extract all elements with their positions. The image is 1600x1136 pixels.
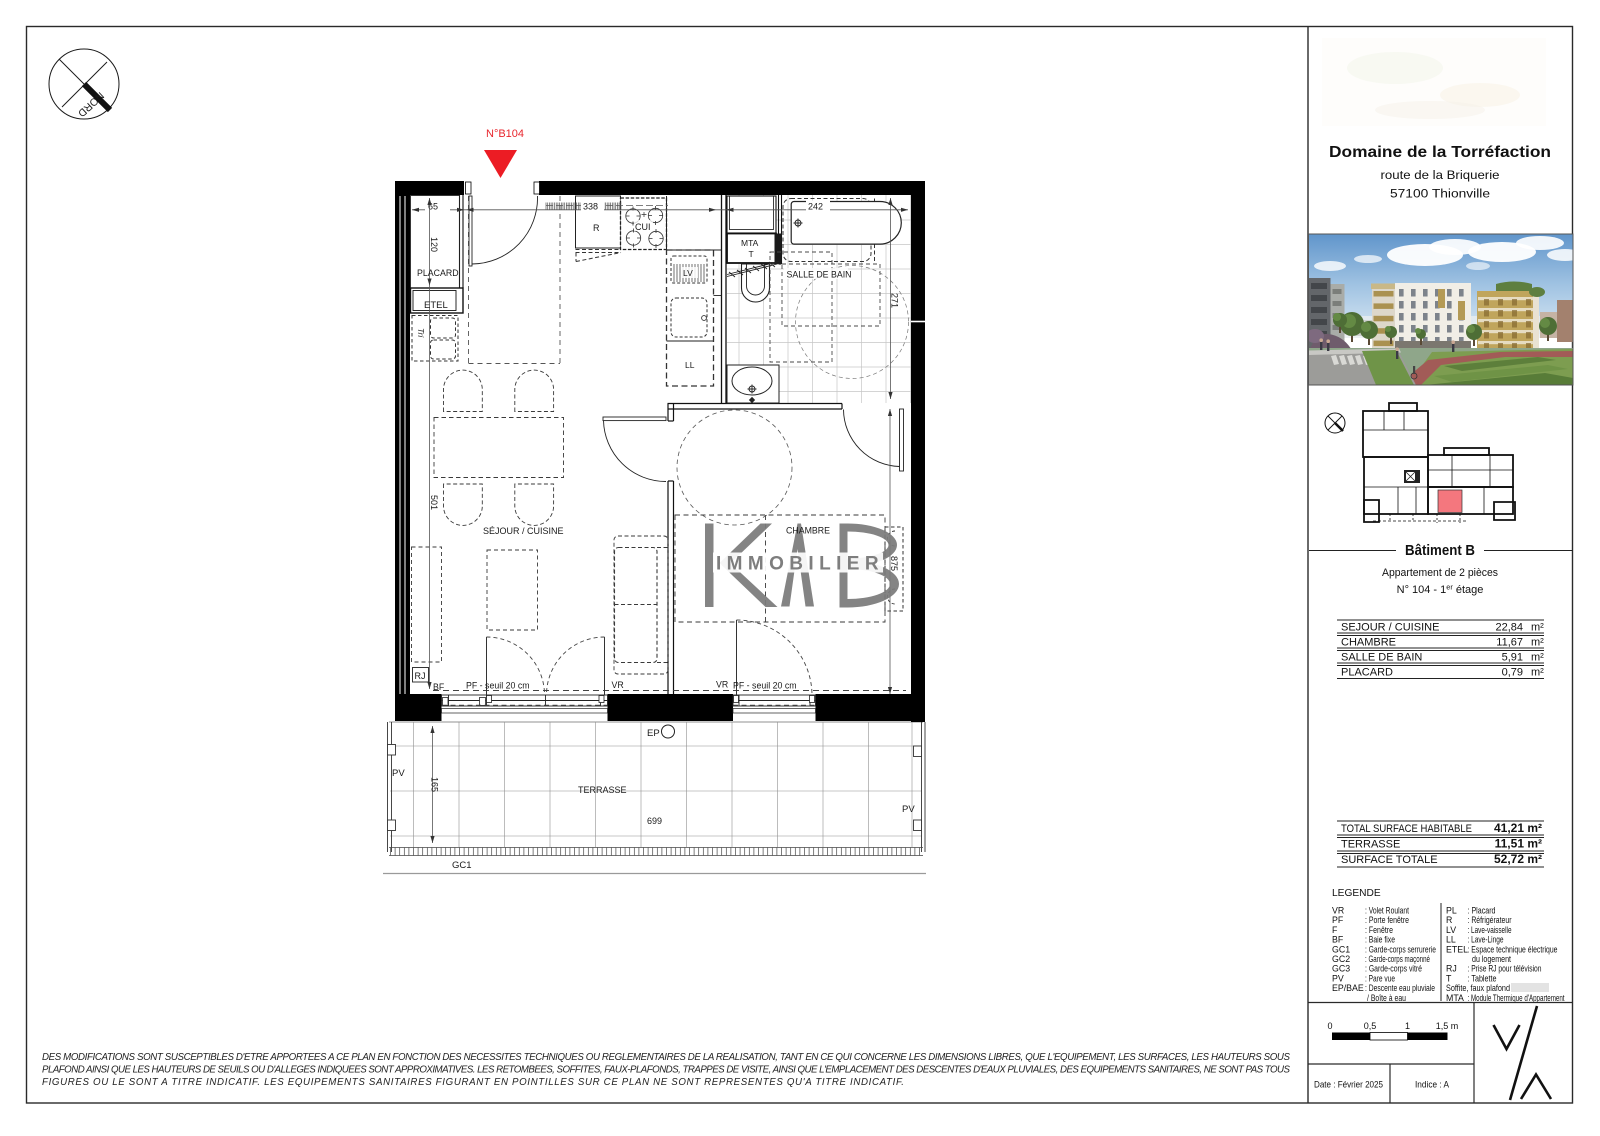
svg-text:PLAFOND AINSI QUE LES HAUTEURS: PLAFOND AINSI QUE LES HAUTEURS DE SEUILS… [42,1065,1291,1076]
svg-text:N° 104 - 1er étage: N° 104 - 1er étage [1397,583,1484,597]
svg-text:0: 0 [1327,1021,1332,1031]
svg-text:BF: BF [1332,935,1344,945]
svg-text:CUI: CUI [635,222,651,232]
svg-text:SURFACE TOTALE: SURFACE TOTALE [1341,854,1438,866]
svg-text:GC3: GC3 [1332,964,1350,974]
svg-text:IMMOBILIER: IMMOBILIER [716,554,884,575]
svg-text:SALLE DE BAIN: SALLE DE BAIN [787,270,852,280]
svg-text:RJ: RJ [1446,964,1457,974]
svg-text:CHAMBRE: CHAMBRE [1341,637,1396,649]
svg-text:GC1: GC1 [1332,944,1350,954]
svg-text:ETEL: ETEL [424,300,448,311]
svg-text:22,84: 22,84 [1495,622,1523,634]
svg-text:Domaine de la Torréfaction: Domaine de la Torréfaction [1329,144,1551,161]
svg-text:: Garde-corps serrurerie: : Garde-corps serrurerie [1365,944,1436,954]
svg-text:PL: PL [1446,906,1457,916]
svg-text:RJ: RJ [415,671,426,681]
svg-text:T: T [749,249,754,259]
svg-text:: Tablette: : Tablette [1468,973,1497,983]
svg-text:0,79: 0,79 [1502,667,1523,679]
svg-text:PF - seuil 20 cm: PF - seuil 20 cm [466,681,530,691]
svg-text:52,72 m²: 52,72 m² [1494,852,1542,866]
svg-text:: Réfrigérateur: : Réfrigérateur [1468,915,1512,925]
svg-text:: Volet Roulant: : Volet Roulant [1365,906,1409,916]
svg-text:VR: VR [716,680,728,690]
svg-text:ETEL: ETEL [1446,944,1468,954]
svg-text:SALLE DE BAIN: SALLE DE BAIN [1341,652,1422,664]
svg-text:: Garde-corps vitré: : Garde-corps vitré [1365,964,1422,974]
svg-text:/ Boîte à eau: / Boîte à eau [1367,993,1406,1003]
svg-text:57100 Thionville: 57100 Thionville [1390,187,1490,201]
svg-text:: Garde-corps maçonné: : Garde-corps maçonné [1365,954,1430,964]
svg-text:Tri: Tri [416,328,426,338]
svg-text:T: T [1446,973,1452,983]
svg-text:GC2: GC2 [1332,954,1350,964]
svg-text:TOTAL SURFACE HABITABLE: TOTAL SURFACE HABITABLE [1341,823,1472,835]
svg-text:Bâtiment B: Bâtiment B [1405,543,1475,559]
svg-text:LL: LL [1446,935,1456,945]
svg-text:11,67: 11,67 [1496,637,1523,649]
svg-text:m²: m² [1531,637,1544,649]
svg-text:: Placard: : Placard [1468,906,1496,916]
svg-text:: Espace technique électrique: : Espace technique électrique [1468,944,1558,954]
svg-text:: Pare vue: : Pare vue [1365,973,1395,983]
svg-text:MTA: MTA [741,238,759,248]
svg-text:242: 242 [808,202,823,212]
svg-text:MTA: MTA [1446,993,1464,1003]
svg-text:Indice : A: Indice : A [1415,1080,1450,1091]
svg-text:F: F [1332,925,1338,935]
svg-text:du logement: du logement [1472,954,1511,964]
svg-text:FIGURES OU LE SONT A TITRE IND: FIGURES OU LE SONT A TITRE INDICATIF. LE… [42,1077,904,1088]
svg-text:PV: PV [392,768,405,779]
svg-text:route de la Briquerie: route de la Briquerie [1381,168,1500,182]
svg-text:m²: m² [1531,622,1544,634]
svg-text:VR: VR [1332,906,1344,916]
svg-text:N°B104: N°B104 [486,128,524,140]
svg-text:0,5: 0,5 [1364,1021,1377,1031]
svg-text:VR: VR [612,680,624,690]
svg-text:PF - seuil 20 cm: PF - seuil 20 cm [733,681,797,691]
svg-text:SÉJOUR / CUISINE: SÉJOUR / CUISINE [483,526,564,536]
svg-text:338: 338 [583,202,598,212]
svg-text:SEJOUR / CUISINE: SEJOUR / CUISINE [1341,622,1439,634]
svg-text:PLACARD: PLACARD [1341,667,1393,679]
svg-text:271: 271 [890,293,900,308]
svg-text:1,5 m: 1,5 m [1436,1021,1459,1031]
svg-text:: Baie fixe: : Baie fixe [1365,935,1395,945]
svg-text:: Lave-vaisselle: : Lave-vaisselle [1468,925,1512,935]
svg-text:PV: PV [1332,973,1344,983]
svg-text:501: 501 [429,495,439,510]
svg-text:PLACARD: PLACARD [417,268,459,278]
svg-text:PF: PF [1332,915,1344,925]
svg-text:: Prise RJ pour télévision: : Prise RJ pour télévision [1468,964,1542,974]
svg-text:EP: EP [647,728,660,739]
svg-text:Appartement de 2 pièces: Appartement de 2 pièces [1382,567,1498,579]
svg-text:CHAMBRE: CHAMBRE [786,526,830,536]
svg-text:120: 120 [429,237,439,252]
svg-text:PV: PV [902,804,915,815]
svg-text:: Descente eau pluviale: : Descente eau pluviale [1365,983,1435,993]
svg-text:: Fenêtre: : Fenêtre [1365,925,1393,935]
svg-text:R: R [593,223,600,233]
svg-text:LV: LV [1446,925,1456,935]
svg-text:11,51 m²: 11,51 m² [1495,837,1542,851]
svg-text:LL: LL [685,360,695,370]
svg-text:: Module Thermique d'Apparteme: : Module Thermique d'Appartement [1468,993,1565,1003]
svg-text:DES MODIFICATIONS SONT SUSCEPT: DES MODIFICATIONS SONT SUSCEPTIBLES D'ET… [42,1052,1291,1063]
svg-text:699: 699 [647,816,662,826]
svg-text:LV: LV [683,268,693,278]
svg-text:m²: m² [1531,667,1544,679]
svg-text:LEGENDE: LEGENDE [1332,888,1381,899]
svg-text:TERRASSE: TERRASSE [1341,839,1400,851]
svg-text:5,91: 5,91 [1502,652,1523,664]
svg-text:41,21 m²: 41,21 m² [1494,821,1542,835]
svg-text:BF: BF [433,682,445,692]
svg-text:875: 875 [889,556,899,571]
svg-text:EP/BAE: EP/BAE [1332,983,1364,993]
svg-text:Date : Février 2025: Date : Février 2025 [1314,1080,1383,1091]
svg-text:TERRASSE: TERRASSE [578,785,627,795]
svg-text:Soffite, faux plafond: Soffite, faux plafond [1446,983,1510,993]
svg-text:: Porte fenêtre: : Porte fenêtre [1365,915,1409,925]
svg-text:165: 165 [430,777,440,792]
svg-text:R: R [1446,915,1452,925]
svg-text:1: 1 [1405,1021,1410,1031]
svg-text:: Lave-Linge: : Lave-Linge [1468,935,1504,945]
svg-text:GC1: GC1 [452,860,472,871]
svg-text:m²: m² [1531,652,1544,664]
